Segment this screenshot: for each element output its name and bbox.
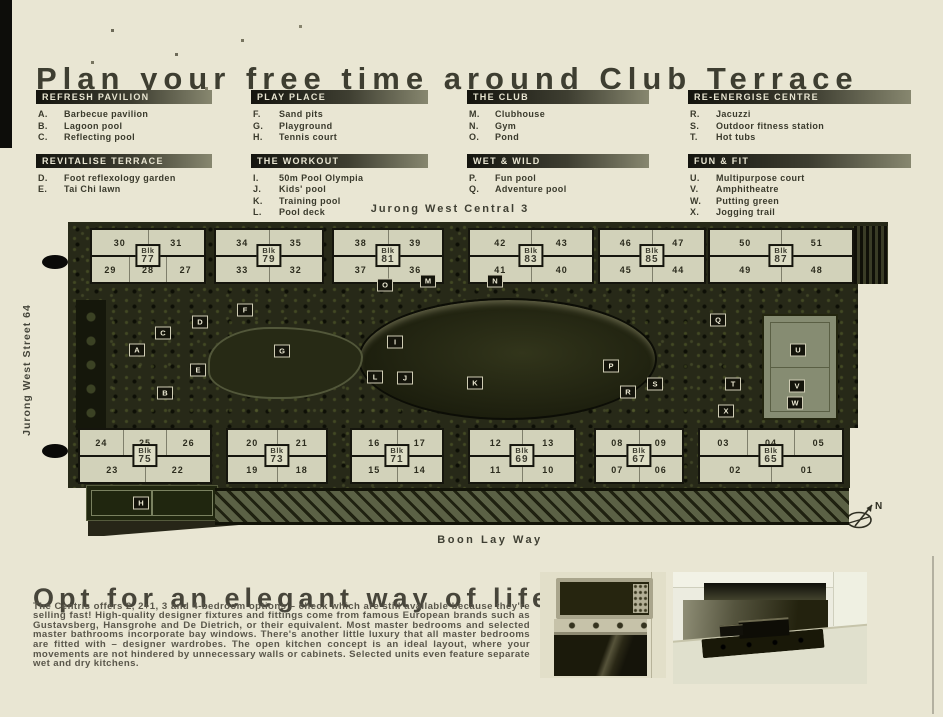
legend-item-key: I.	[251, 173, 279, 185]
legend-header: THE CLUB	[467, 90, 649, 104]
legend-item: E.Tai Chi lawn	[36, 184, 212, 196]
legend-item: G.Playground	[251, 121, 428, 133]
legend-item-key: K.	[251, 196, 279, 208]
block-badge: Blk67	[626, 444, 651, 467]
facility-marker-A: A	[129, 344, 145, 357]
legend-item-label: 50m Pool Olympia	[279, 173, 363, 185]
facility-marker-N: N	[487, 275, 503, 288]
legend-item-label: Multipurpose court	[716, 173, 805, 185]
legend-item-key: N.	[467, 121, 495, 133]
legend-item: H.Tennis court	[251, 132, 428, 144]
legend-item-label: Clubhouse	[495, 109, 545, 121]
facility-marker-C: C	[155, 327, 171, 340]
legend-header: PLAY PLACE	[251, 90, 428, 104]
facility-marker-O: O	[377, 279, 393, 292]
facility-marker-J: J	[397, 372, 413, 385]
compass-icon: N	[842, 496, 890, 536]
facility-marker-E: E	[190, 364, 206, 377]
kitchen-photo-oven	[540, 572, 666, 678]
legend-item-key: J.	[251, 184, 279, 196]
building-block-73: 20211918Blk73	[226, 428, 328, 484]
legend-section-revitalise-terrace: REVITALISE TERRACED.Foot reflexology gar…	[36, 154, 212, 219]
legend-section-refresh-pavilion: REFRESH PAVILIONA.Barbecue pavilionB.Lag…	[36, 90, 212, 144]
legend-item-key: A.	[36, 109, 64, 121]
legend-header: FUN & FIT	[688, 154, 911, 168]
legend-item-label: Sand pits	[279, 109, 323, 121]
building-block-65: 0304050201Blk65	[698, 428, 844, 484]
unit-number: 05	[794, 430, 842, 455]
legend-item-label: Lagoon pool	[64, 121, 122, 133]
facility-marker-K: K	[467, 377, 483, 390]
facility-marker-Q: Q	[710, 314, 726, 327]
legend-item: O.Pond	[467, 132, 649, 144]
legend-section-re-energise-centre: RE-ENERGISE CENTRER.JacuzziS.Outdoor fit…	[688, 90, 911, 144]
legend-item-key: L.	[251, 207, 279, 219]
unit-number: 27	[166, 257, 204, 282]
legend-item-label: Kids' pool	[279, 184, 326, 196]
legend-item: R.Jacuzzi	[688, 109, 911, 121]
legend-item-key: V.	[688, 184, 716, 196]
unit-number: 24	[80, 430, 123, 455]
legend-item: M.Clubhouse	[467, 109, 649, 121]
legend: REFRESH PAVILIONA.Barbecue pavilionB.Lag…	[36, 90, 911, 219]
legend-item: F.Sand pits	[251, 109, 428, 121]
kitchen-photo-hob	[673, 572, 867, 684]
legend-item-label: Training pool	[279, 196, 341, 208]
legend-item-key: C.	[36, 132, 64, 144]
tennis-court-shape	[86, 485, 218, 521]
scan-speckles	[0, 0, 1, 1]
street-label-jurong-west-street: Jurong West Street 64	[21, 304, 33, 436]
built-in-microwave	[556, 578, 652, 619]
cooker-hood	[704, 583, 826, 601]
pot	[738, 617, 790, 638]
building-block-75: 2425262322Blk75	[78, 428, 212, 484]
building-block-67: 08090706Blk67	[594, 428, 684, 484]
facility-marker-L: L	[367, 371, 383, 384]
legend-section-play-place: PLAY PLACEF.Sand pitsG.PlaygroundH.Tenni…	[251, 90, 428, 144]
legend-header: WET & WILD	[467, 154, 649, 168]
scan-edge-line	[932, 556, 934, 714]
block-badge: Blk75	[132, 444, 157, 467]
legend-item: X.Jogging trail	[688, 207, 911, 219]
legend-item: S.Outdoor fitness station	[688, 121, 911, 133]
block-badge: Blk69	[509, 444, 534, 467]
legend-item: B.Lagoon pool	[36, 121, 212, 133]
building-block-87: 50514948Blk87	[708, 228, 854, 284]
facility-marker-W: W	[787, 397, 803, 410]
facility-marker-X: X	[718, 405, 734, 418]
unit-number: 03	[700, 430, 747, 455]
legend-item-label: Jacuzzi	[716, 109, 751, 121]
legend-item-key: O.	[467, 132, 495, 144]
legend-item-key: B.	[36, 121, 64, 133]
building-block-85: 46474544Blk85	[598, 228, 706, 284]
legend-item-key: S.	[688, 121, 716, 133]
legend-item: I.50m Pool Olympia	[251, 173, 428, 185]
oven-door	[554, 632, 647, 675]
unit-number: 26	[166, 430, 210, 455]
legend-item-key: R.	[688, 109, 716, 121]
legend-item: U.Multipurpose court	[688, 173, 911, 185]
facility-marker-F: F	[237, 304, 253, 317]
legend-item: T.Hot tubs	[688, 132, 911, 144]
facility-marker-M: M	[420, 275, 436, 288]
legend-item-key: F.	[251, 109, 279, 121]
legend-item-key: Q.	[467, 184, 495, 196]
legend-item-label: Tennis court	[279, 132, 337, 144]
legend-item-key: M.	[467, 109, 495, 121]
legend-item-key: E.	[36, 184, 64, 196]
block-badge: Blk79	[256, 244, 281, 267]
legend-item-key: G.	[251, 121, 279, 133]
legend-item-label: Tai Chi lawn	[64, 184, 121, 196]
block-badge: Blk81	[375, 244, 400, 267]
legend-header: THE WORKOUT	[251, 154, 428, 168]
block-badge: Blk73	[264, 444, 289, 467]
legend-item-key: T.	[688, 132, 716, 144]
facility-marker-G: G	[274, 345, 290, 358]
legend-item: P.Fun pool	[467, 173, 649, 185]
site-map: 3031292827Blk7734353332Blk7938393736Blk8…	[68, 222, 888, 522]
legend-item: W.Putting green	[688, 196, 911, 208]
legend-item: Q.Adventure pool	[467, 184, 649, 196]
block-badge: Blk71	[384, 444, 409, 467]
map-structure-topright	[854, 226, 888, 284]
legend-item-label: Pond	[495, 132, 519, 144]
legend-section-the-club: THE CLUBM.ClubhouseN.GymO.Pond	[467, 90, 649, 144]
facility-marker-V: V	[789, 380, 805, 393]
block-badge: Blk83	[518, 244, 543, 267]
scan-edge-strip	[0, 0, 12, 148]
legend-item-label: Barbecue pavilion	[64, 109, 148, 121]
facility-marker-T: T	[725, 378, 741, 391]
legend-header: REFRESH PAVILION	[36, 90, 212, 104]
facility-marker-S: S	[647, 378, 663, 391]
microwave-controls	[633, 584, 648, 613]
unit-number: 29	[92, 257, 129, 282]
legend-item-label: Reflecting pool	[64, 132, 135, 144]
oven-control-panel	[554, 619, 647, 633]
legend-item-key: U.	[688, 173, 716, 185]
legend-item: N.Gym	[467, 121, 649, 133]
svg-text:N: N	[875, 501, 882, 512]
block-badge: Blk85	[639, 244, 664, 267]
legend-item-key: W.	[688, 196, 716, 208]
brochure-page: Plan your free time around Club Terrace …	[0, 0, 943, 717]
pot-small	[719, 624, 743, 637]
legend-item: A.Barbecue pavilion	[36, 109, 212, 121]
legend-item-label: Hot tubs	[716, 132, 756, 144]
lifestyle-paragraph: The Centris offers 2, 2+1, 3 and 4-bedro…	[33, 602, 530, 669]
facility-marker-B: B	[157, 387, 173, 400]
legend-item: D.Foot reflexology garden	[36, 173, 212, 185]
legend-item-key: P.	[467, 173, 495, 185]
facility-marker-I: I	[387, 336, 403, 349]
legend-item-label: Gym	[495, 121, 516, 133]
legend-header: RE-ENERGISE CENTRE	[688, 90, 911, 104]
building-block-71: 16171514Blk71	[350, 428, 444, 484]
block-badge: Blk77	[135, 244, 160, 267]
legend-item-label: Pool deck	[279, 207, 325, 219]
legend-item: V.Amphitheatre	[688, 184, 911, 196]
map-structure-left	[76, 300, 106, 430]
legend-item-label: Foot reflexology garden	[64, 173, 176, 185]
street-label-jurong-west-central: Jurong West Central 3	[340, 203, 560, 215]
facility-marker-D: D	[192, 316, 208, 329]
legend-item-label: Fun pool	[495, 173, 536, 185]
building-block-69: 12131110Blk69	[468, 428, 576, 484]
facility-marker-R: R	[620, 386, 636, 399]
tennis-court-lines	[91, 490, 213, 516]
block-badge: Blk65	[758, 444, 783, 467]
legend-item-key: H.	[251, 132, 279, 144]
legend-header: REVITALISE TERRACE	[36, 154, 212, 168]
legend-item-key: D.	[36, 173, 64, 185]
side-cabinet	[833, 572, 867, 626]
facility-marker-U: U	[790, 344, 806, 357]
legend-section-fun-fit: FUN & FITU.Multipurpose courtV.Amphithea…	[688, 154, 911, 219]
legend-item-label: Playground	[279, 121, 333, 133]
legend-item: C.Reflecting pool	[36, 132, 212, 144]
legend-item-label: Amphitheatre	[716, 184, 779, 196]
legend-item-label: Outdoor fitness station	[716, 121, 824, 133]
legend-item-label: Jogging trail	[716, 207, 775, 219]
legend-item-label: Adventure pool	[495, 184, 567, 196]
legend-item-key: X.	[688, 207, 716, 219]
built-in-oven	[554, 619, 647, 676]
facility-marker-P: P	[603, 360, 619, 373]
facility-marker-H: H	[133, 497, 149, 510]
hole-punch-mark	[42, 255, 68, 269]
building-block-79: 34353332Blk79	[214, 228, 324, 284]
block-badge: Blk87	[768, 244, 793, 267]
legend-item: J.Kids' pool	[251, 184, 428, 196]
legend-item-label: Putting green	[716, 196, 779, 208]
street-label-boon-lay-way: Boon Lay Way	[380, 534, 600, 546]
hole-punch-mark	[42, 444, 68, 458]
building-block-77: 3031292827Blk77	[90, 228, 206, 284]
trellis-walkway	[215, 488, 849, 525]
